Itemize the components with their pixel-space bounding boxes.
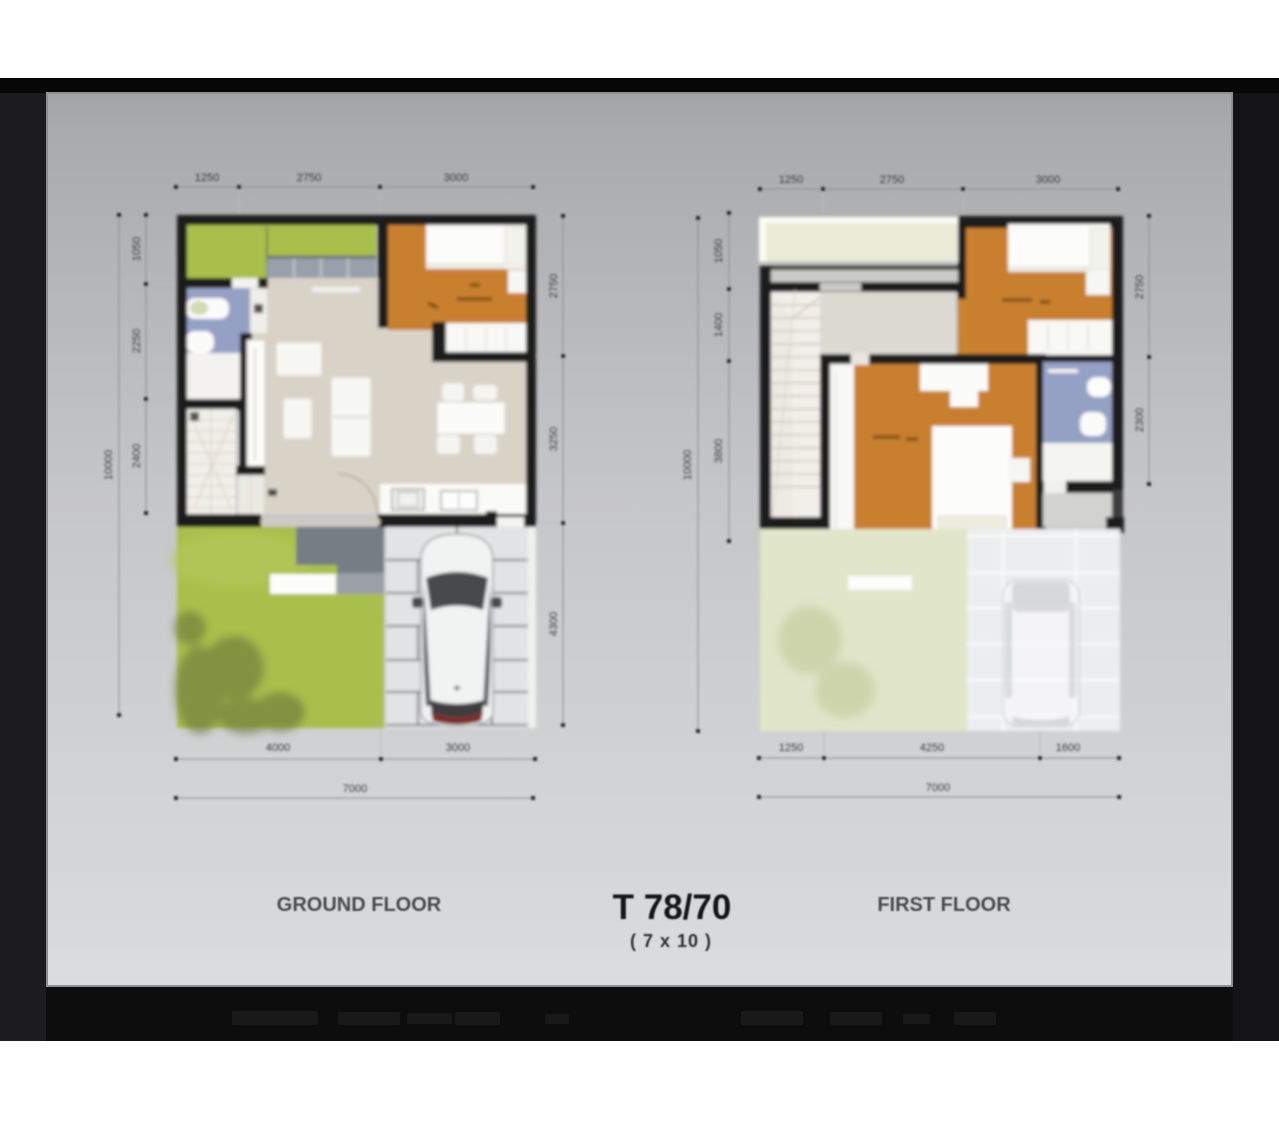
svg-text:2250: 2250 (131, 329, 143, 353)
svg-text:7000: 7000 (926, 782, 950, 794)
svg-text:GROUND FLOOR: GROUND FLOOR (277, 894, 442, 916)
svg-text:3000: 3000 (446, 742, 470, 754)
svg-text:4250: 4250 (920, 742, 944, 754)
svg-text:T 78/70: T 78/70 (613, 888, 732, 927)
svg-text:1250: 1250 (195, 172, 219, 184)
svg-text:2750: 2750 (1134, 275, 1146, 299)
svg-text:1400: 1400 (713, 313, 725, 337)
svg-text:10000: 10000 (682, 450, 694, 481)
svg-text:FIRST FLOOR: FIRST FLOOR (877, 894, 1011, 916)
svg-text:4300: 4300 (548, 612, 560, 636)
svg-text:3000: 3000 (1036, 174, 1060, 186)
svg-text:2300: 2300 (1134, 408, 1146, 432)
svg-text:1250: 1250 (779, 174, 803, 186)
svg-text:3800: 3800 (713, 439, 725, 463)
svg-text:1050: 1050 (131, 237, 143, 261)
svg-text:2400: 2400 (131, 444, 143, 468)
svg-text:4000: 4000 (266, 742, 290, 754)
svg-text:2750: 2750 (548, 274, 560, 298)
svg-text:7000: 7000 (343, 783, 367, 795)
svg-text:2750: 2750 (297, 172, 321, 184)
svg-text:1250: 1250 (779, 742, 803, 754)
svg-text:3250: 3250 (548, 427, 560, 451)
svg-text:3000: 3000 (444, 172, 468, 184)
svg-text:10000: 10000 (103, 450, 115, 481)
svg-text:( 7 x 10 ): ( 7 x 10 ) (630, 931, 712, 951)
svg-text:1050: 1050 (713, 239, 725, 263)
svg-text:1600: 1600 (1056, 742, 1080, 754)
svg-text:2750: 2750 (880, 174, 904, 186)
